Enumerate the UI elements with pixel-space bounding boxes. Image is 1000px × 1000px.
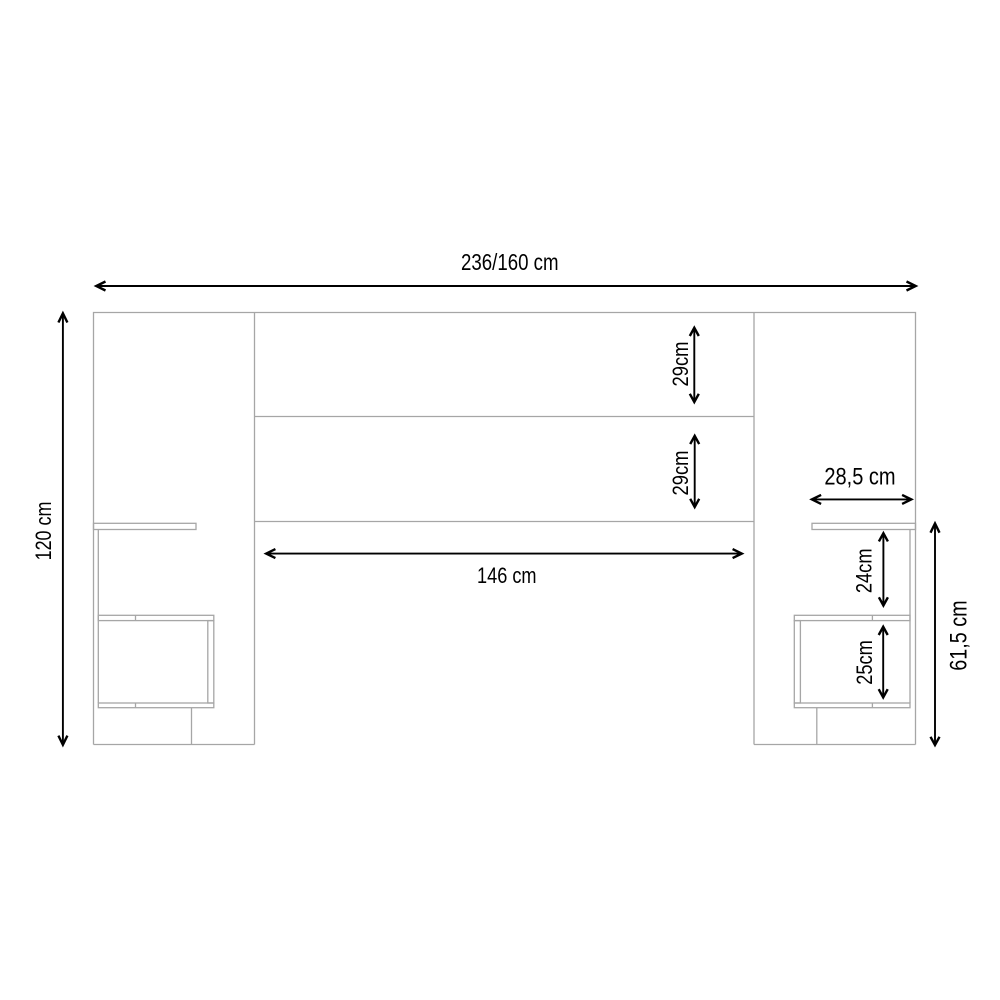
svg-text:28,5 cm: 28,5 cm [824,463,895,490]
svg-text:146 cm: 146 cm [477,563,537,588]
svg-text:236/160 cm: 236/160 cm [461,249,559,275]
svg-text:29cm: 29cm [668,451,693,496]
svg-text:29cm: 29cm [668,342,693,387]
svg-text:25cm: 25cm [852,640,877,685]
svg-text:24cm: 24cm [851,548,876,593]
svg-text:61,5 cm: 61,5 cm [946,600,973,670]
svg-text:120 cm: 120 cm [31,502,56,561]
